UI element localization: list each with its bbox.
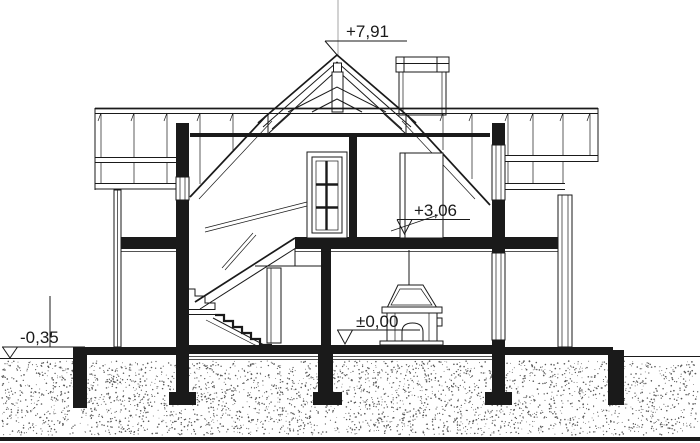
right-wall-upper [492,123,505,145]
right-wall-footing [485,392,512,405]
left-wall-upper [176,123,189,177]
ridge-level-label: +7,91 [346,22,389,41]
right-attic-window [492,145,505,200]
left-porch-post [114,190,121,347]
right-porch-post [558,195,572,347]
ground-baseline [0,437,700,441]
right-terrace-door [492,253,505,340]
right-wall-mid [492,200,505,253]
right-terrace-foundation [608,350,624,405]
attic-partition-wall [349,133,357,237]
left-landing-window [176,177,189,200]
right-terrace-slab [505,347,613,355]
left-wall-lower [176,200,189,392]
lower-steps [215,315,272,345]
fireplace-knob [437,318,442,326]
attic-glazed-door [307,152,347,238]
center-pier [318,354,333,392]
staircase [185,233,299,347]
attic-chimney-breast [391,153,443,238]
architectural-section-drawing: +7,91 +3,06 ±0,00 -0,35 [0,0,700,443]
structure-poche [73,123,624,408]
left-wall-footing [169,392,196,405]
interior-wall [321,240,331,345]
attic-ceiling [190,133,490,137]
fireplace-hood [387,285,437,308]
left-terrace-slab [85,347,176,355]
ground-hatch [1,360,698,436]
chimney [396,57,449,115]
ridge-block [334,63,342,72]
left-porch-slab [120,237,176,249]
ground-surface [0,357,700,360]
terrain-level-marker: -0,35 [2,296,85,358]
roof-section [258,55,416,133]
ridge-level-marker: +7,91 [325,22,407,56]
right-porch-slab [505,237,565,249]
fireplace-plinth [380,341,443,345]
king-post [332,72,343,112]
left-porch-foundation [73,347,87,408]
terrain-level-label: -0,35 [20,328,59,347]
ground-level-label: ±0,00 [356,312,398,331]
center-footing [313,392,342,405]
right-wall-lower [492,340,505,392]
ground-floor-slab [176,345,505,354]
section-canvas: +7,91 +3,06 ±0,00 -0,35 [0,0,700,443]
interior-door [267,268,281,343]
handrail [222,233,253,268]
attic-level-label: +3,06 [414,201,457,220]
